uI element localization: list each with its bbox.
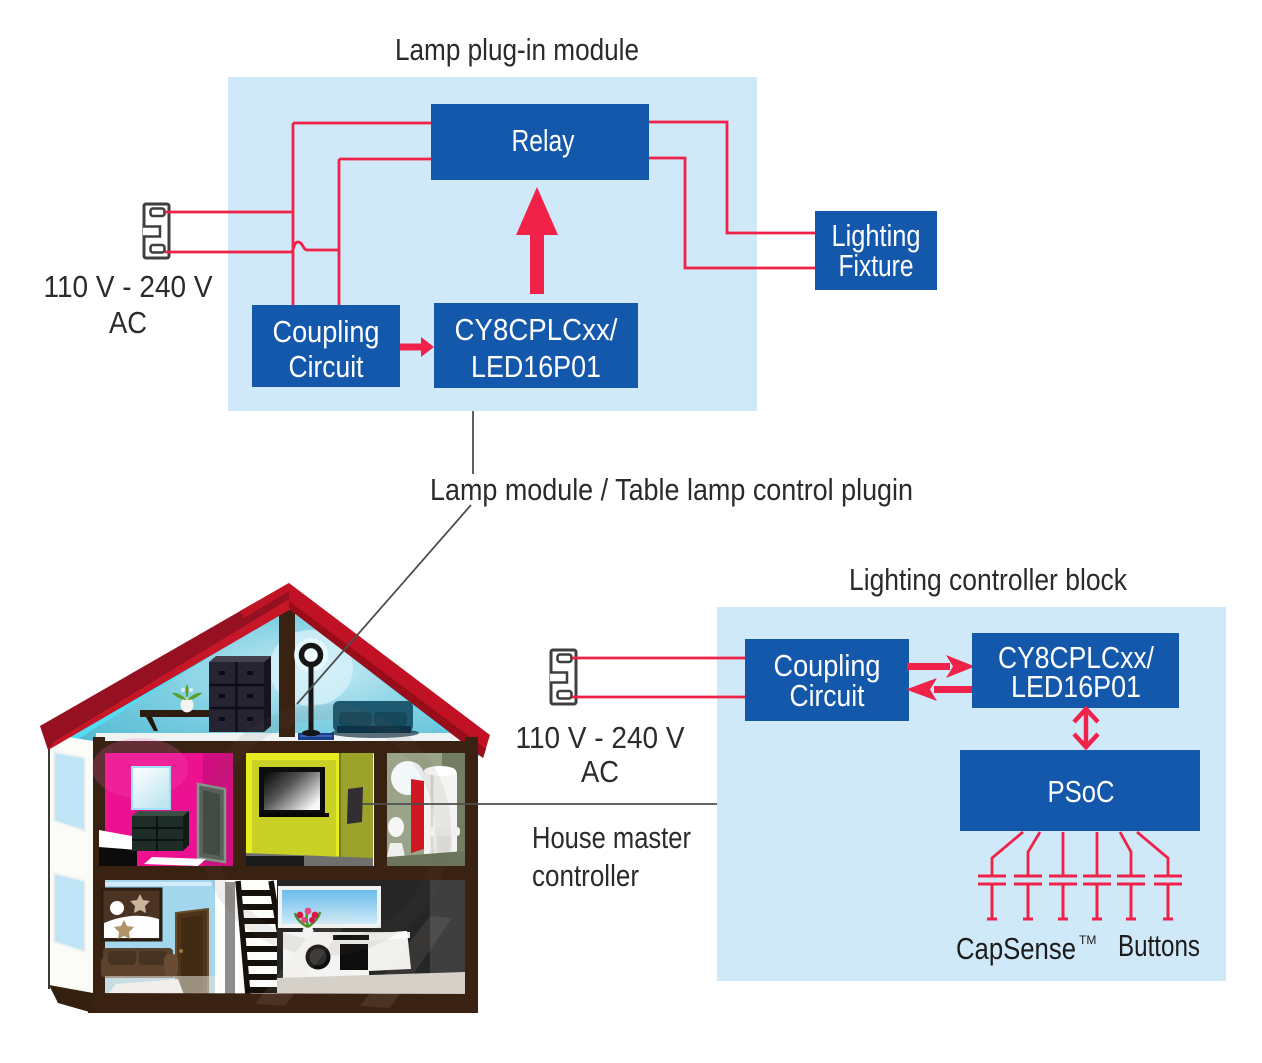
svg-text:LED16P01: LED16P01: [471, 349, 601, 384]
svg-text:CapSense: CapSense: [956, 931, 1076, 966]
svg-text:Relay: Relay: [512, 123, 575, 158]
svg-text:Coupling: Coupling: [273, 314, 380, 349]
svg-text:LED16P01: LED16P01: [1011, 669, 1141, 704]
svg-text:Circuit: Circuit: [289, 349, 364, 384]
svg-text:Circuit: Circuit: [790, 678, 865, 713]
svg-text:Fixture: Fixture: [839, 248, 914, 283]
svg-text:110 V - 240 V: 110 V - 240 V: [516, 720, 685, 755]
svg-text:AC: AC: [109, 305, 147, 340]
svg-text:Lamp plug-in module: Lamp plug-in module: [395, 32, 639, 67]
svg-text:Lighting controller block: Lighting controller block: [849, 562, 1127, 597]
svg-text:Buttons: Buttons: [1118, 928, 1200, 963]
svg-text:House master: House master: [532, 820, 691, 855]
svg-text:PSoC: PSoC: [1048, 774, 1115, 809]
svg-text:CY8CPLCxx/: CY8CPLCxx/: [455, 312, 618, 347]
svg-text:TM: TM: [1079, 933, 1096, 947]
svg-text:Lamp module / Table lamp contr: Lamp module / Table lamp control plugin: [430, 472, 913, 507]
svg-text:110 V - 240 V: 110 V - 240 V: [44, 269, 213, 304]
svg-text:controller: controller: [532, 858, 639, 893]
svg-text:AC: AC: [581, 754, 619, 789]
